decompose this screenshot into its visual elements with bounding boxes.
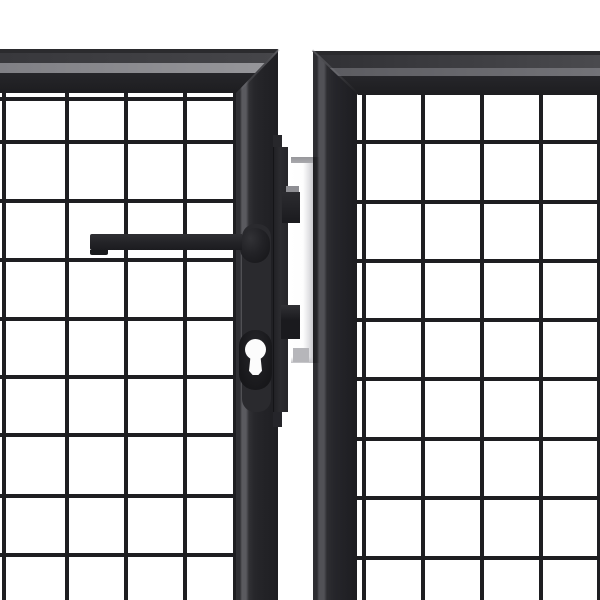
- rail-highlight-strip: [312, 68, 600, 76]
- rail-highlight-strip: [0, 63, 278, 73]
- mesh-wire-vertical: [539, 92, 543, 600]
- mesh-wire-vertical: [480, 92, 484, 600]
- handle-grip-step: [90, 250, 108, 255]
- handle-lever-bar: [90, 234, 242, 250]
- mesh-wire-horizontal: [0, 553, 236, 557]
- mesh-wire-horizontal: [357, 259, 600, 263]
- rail-top-face: [312, 55, 600, 68]
- lower-keeper-bracket: [281, 305, 300, 339]
- mesh-wire-vertical: [362, 92, 366, 600]
- mesh-wire-horizontal: [0, 433, 236, 437]
- post-top-face: [291, 157, 313, 163]
- mesh-wire-horizontal: [0, 258, 236, 262]
- post-shadow-on-stile: [313, 157, 320, 363]
- right-leaf-top-rail: [312, 51, 600, 95]
- mesh-wire-horizontal: [357, 437, 600, 441]
- mesh-wire-vertical: [65, 90, 69, 600]
- mesh-wire-horizontal: [0, 494, 236, 498]
- mesh-wire-horizontal: [357, 140, 600, 144]
- mesh-wire-horizontal: [357, 496, 600, 500]
- rail-top-face: [0, 53, 278, 63]
- mesh-wire-horizontal: [357, 556, 600, 560]
- keyhole-stem: [249, 356, 262, 375]
- mesh-wire-horizontal: [0, 375, 236, 379]
- handle-mounting-boss: [240, 228, 270, 263]
- mesh-wire-vertical: [183, 90, 187, 600]
- mesh-wire-horizontal: [0, 317, 236, 321]
- mesh-wire-horizontal: [0, 97, 236, 101]
- mesh-wire-horizontal: [357, 318, 600, 322]
- mesh-wire-vertical: [421, 92, 425, 600]
- mesh-wire-vertical: [124, 90, 128, 600]
- mesh-wire-horizontal: [357, 200, 600, 204]
- mesh-wire-horizontal: [0, 140, 236, 144]
- mesh-wire-vertical: [2, 90, 6, 600]
- upper-keeper-bracket: [282, 192, 300, 223]
- lock-bar-bottom-end: [273, 412, 282, 427]
- left-leaf-top-rail: [0, 49, 278, 93]
- mesh-wire-horizontal: [357, 377, 600, 381]
- rail-front-face: [0, 73, 278, 93]
- post-bottom-tab: [293, 348, 309, 362]
- mesh-wire-horizontal: [0, 199, 236, 203]
- product-photo-garden-gate[interactable]: [0, 0, 600, 600]
